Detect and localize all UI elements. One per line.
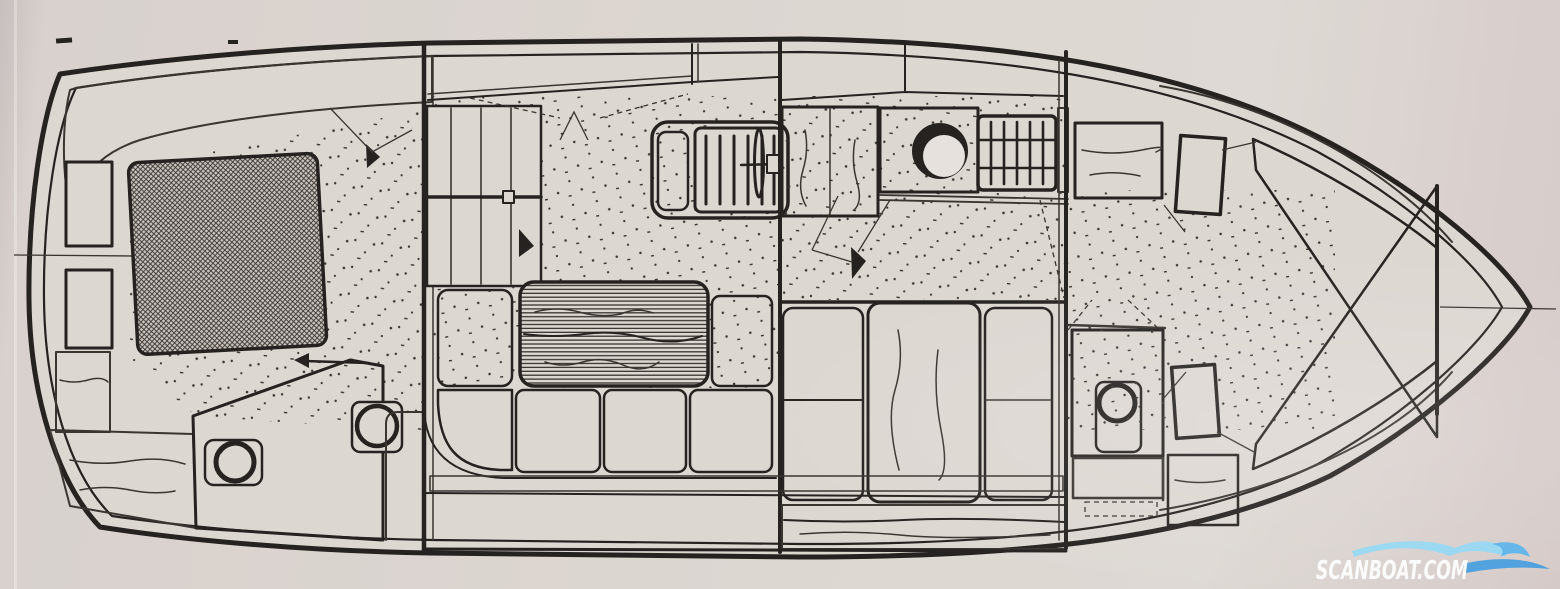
transom-locker-1 — [66, 162, 112, 246]
saloon-table — [520, 282, 708, 386]
scanned-boat-plan-photo: SCANBOAT.COM — [0, 0, 1560, 589]
washbasin-aft — [352, 402, 402, 452]
watermark-text: SCANBOAT.COM — [1316, 556, 1468, 586]
watermark: SCANBOAT.COM — [1316, 541, 1550, 586]
galley-sink-icon — [912, 123, 968, 179]
locker-door-top — [1175, 136, 1225, 215]
deckhouse-bottom-wall — [424, 549, 1066, 551]
watermark-wave-tail — [1462, 559, 1550, 573]
watermark-wave-band — [1352, 541, 1506, 557]
helm-console — [427, 106, 541, 286]
boat-floor-plan: SCANBOAT.COM — [0, 0, 1560, 589]
galley-stove — [978, 116, 1056, 190]
transom-locker-2 — [66, 270, 112, 348]
toilet-aft — [205, 440, 262, 485]
locker-door-bottom — [1172, 365, 1220, 439]
photo-artifacts — [56, 37, 238, 44]
double-berth — [128, 153, 327, 355]
